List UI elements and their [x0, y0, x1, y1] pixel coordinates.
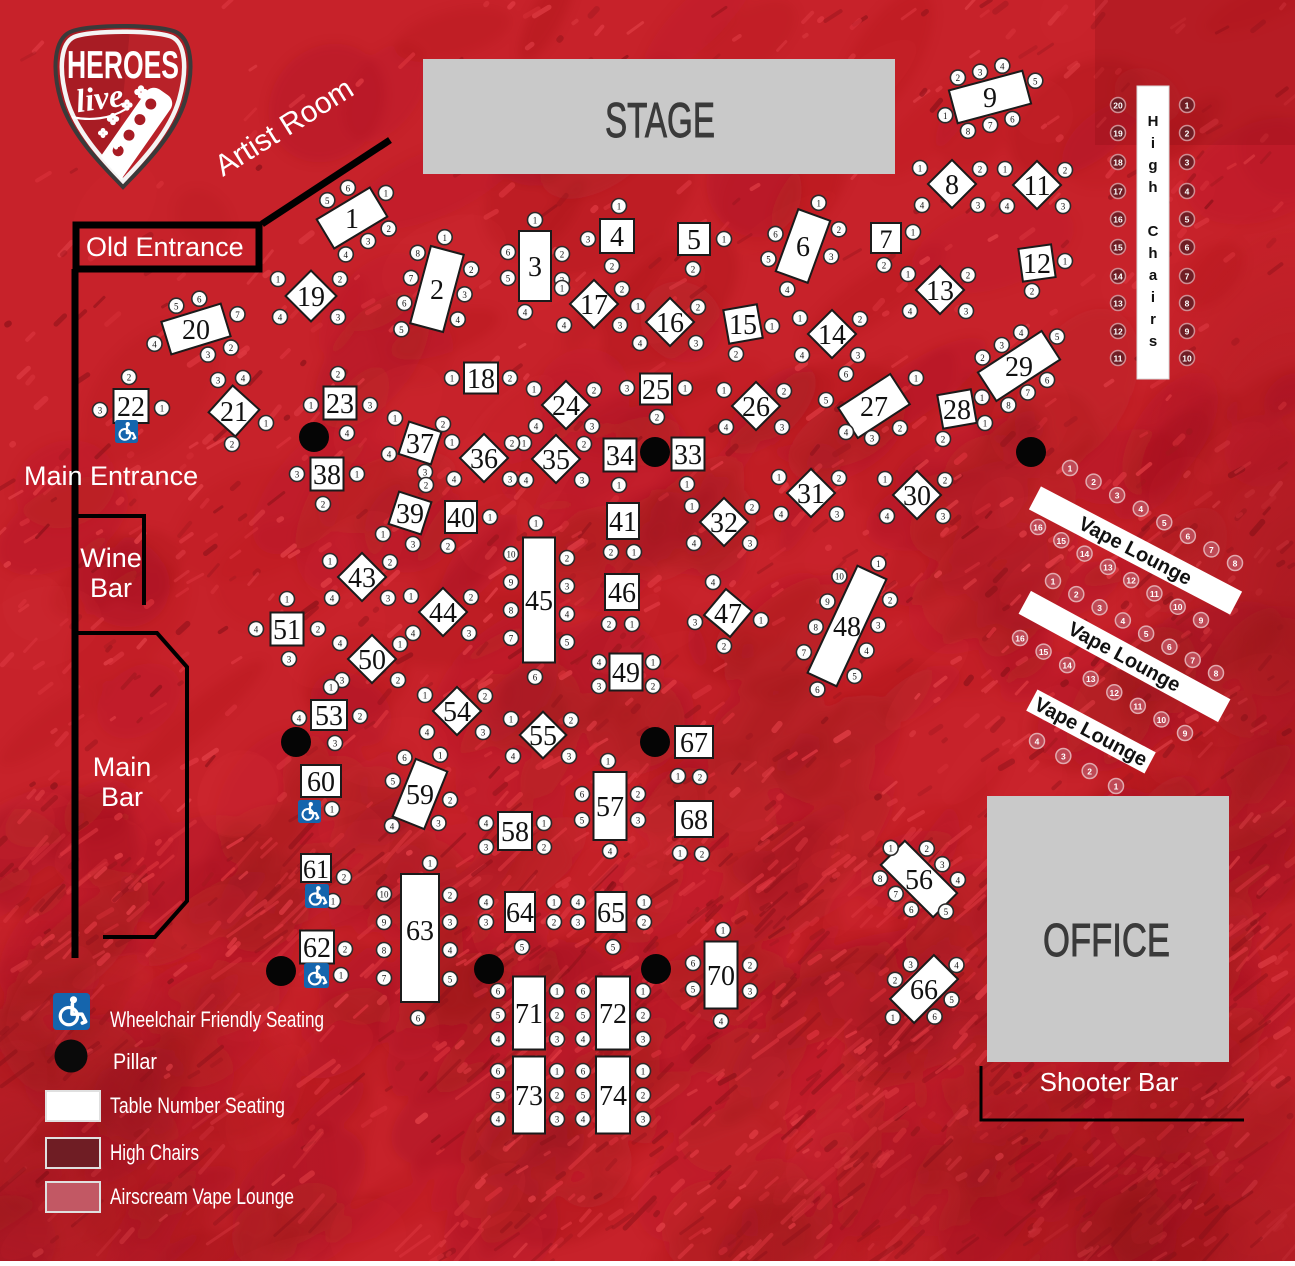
svg-text:Main Entrance: Main Entrance — [24, 461, 198, 491]
svg-text:33: 33 — [674, 440, 702, 471]
svg-text:4: 4 — [844, 428, 849, 438]
svg-text:2: 2 — [882, 261, 887, 271]
svg-text:70: 70 — [707, 961, 735, 992]
svg-text:1: 1 — [617, 481, 622, 491]
svg-text:4: 4 — [610, 222, 624, 253]
svg-text:10: 10 — [507, 550, 517, 560]
svg-text:4: 4 — [719, 1017, 724, 1027]
svg-text:35: 35 — [542, 445, 570, 476]
svg-text:4: 4 — [456, 315, 461, 325]
svg-text:2: 2 — [560, 250, 565, 260]
svg-text:1: 1 — [285, 595, 290, 605]
svg-text:48: 48 — [833, 612, 861, 643]
svg-text:2: 2 — [837, 225, 842, 235]
svg-text:6: 6 — [1010, 115, 1015, 125]
svg-text:7: 7 — [382, 974, 387, 984]
svg-text:1: 1 — [906, 270, 911, 280]
svg-text:3: 3 — [448, 918, 453, 928]
svg-text:4: 4 — [597, 658, 602, 668]
svg-text:4: 4 — [387, 450, 392, 460]
svg-text:17: 17 — [580, 290, 608, 321]
svg-text:4: 4 — [345, 429, 350, 439]
svg-text:27: 27 — [860, 392, 888, 423]
svg-text:1: 1 — [339, 971, 344, 981]
svg-text:9: 9 — [1183, 729, 1188, 739]
svg-text:11: 11 — [1133, 701, 1142, 711]
svg-text:65: 65 — [597, 898, 625, 929]
svg-text:7: 7 — [1185, 272, 1190, 282]
svg-text:3: 3 — [1000, 341, 1005, 351]
svg-text:6: 6 — [1185, 531, 1190, 541]
svg-text:4: 4 — [425, 728, 430, 738]
svg-text:3: 3 — [1061, 752, 1066, 762]
svg-text:1: 1 — [721, 926, 726, 936]
svg-text:25: 25 — [642, 375, 670, 406]
svg-text:2: 2 — [750, 503, 755, 513]
svg-text:1: 1 — [542, 819, 547, 829]
svg-text:4: 4 — [1120, 616, 1125, 626]
svg-text:4: 4 — [920, 201, 925, 211]
svg-text:12: 12 — [1023, 249, 1051, 280]
svg-text:2: 2 — [565, 554, 570, 564]
svg-text:47: 47 — [714, 599, 742, 630]
svg-text:3: 3 — [295, 470, 300, 480]
svg-text:15: 15 — [1113, 243, 1123, 253]
svg-text:18: 18 — [467, 364, 495, 395]
svg-text:2: 2 — [342, 873, 347, 883]
svg-text:3: 3 — [467, 629, 472, 639]
svg-text:15: 15 — [1039, 647, 1049, 657]
svg-text:4: 4 — [864, 646, 869, 656]
svg-text:34: 34 — [606, 441, 634, 472]
svg-text:3: 3 — [555, 1035, 560, 1045]
svg-text:7: 7 — [1190, 655, 1195, 665]
svg-text:2: 2 — [1063, 166, 1068, 176]
svg-text:H: H — [1148, 113, 1159, 130]
svg-text:STAGE: STAGE — [605, 94, 715, 148]
svg-text:2: 2 — [446, 542, 451, 552]
svg-text:3: 3 — [580, 476, 585, 486]
svg-text:30: 30 — [903, 481, 931, 512]
svg-text:4: 4 — [484, 819, 489, 829]
svg-text:1: 1 — [450, 438, 455, 448]
svg-text:3: 3 — [436, 819, 441, 829]
svg-text:8: 8 — [966, 126, 971, 136]
svg-text:1: 1 — [428, 859, 433, 869]
svg-text:5: 5 — [766, 255, 771, 265]
svg-text:2: 2 — [748, 961, 753, 971]
svg-text:31: 31 — [797, 479, 825, 510]
svg-text:4: 4 — [908, 307, 913, 317]
svg-text:2: 2 — [386, 224, 391, 234]
svg-text:2: 2 — [691, 265, 696, 275]
svg-text:5: 5 — [611, 943, 616, 953]
svg-text:66: 66 — [910, 975, 938, 1006]
svg-text:2: 2 — [483, 692, 488, 702]
svg-text:54: 54 — [443, 697, 471, 728]
svg-text:5: 5 — [506, 274, 511, 284]
svg-text:4: 4 — [330, 594, 335, 604]
svg-text:4: 4 — [581, 1035, 586, 1045]
svg-text:73: 73 — [515, 1081, 543, 1112]
svg-text:8: 8 — [509, 606, 514, 616]
svg-text:2: 2 — [888, 595, 893, 605]
svg-text:3: 3 — [597, 682, 602, 692]
svg-text:2: 2 — [430, 275, 444, 306]
svg-text:3: 3 — [636, 816, 641, 826]
svg-text:1: 1 — [355, 470, 360, 480]
svg-text:1: 1 — [641, 987, 646, 997]
svg-text:4: 4 — [779, 510, 784, 520]
svg-text:3: 3 — [590, 422, 595, 432]
svg-text:18: 18 — [1113, 158, 1123, 168]
svg-text:9: 9 — [825, 597, 830, 607]
svg-text:1: 1 — [330, 805, 335, 815]
svg-text:High Chairs: High Chairs — [110, 1140, 199, 1165]
svg-text:4: 4 — [496, 1115, 501, 1125]
svg-text:2: 2 — [396, 676, 401, 686]
svg-text:59: 59 — [406, 780, 434, 811]
svg-text:Main: Main — [93, 752, 152, 782]
svg-text:4: 4 — [1005, 202, 1010, 212]
svg-text:3: 3 — [206, 350, 211, 360]
svg-text:4: 4 — [484, 898, 489, 908]
svg-text:6: 6 — [506, 248, 511, 258]
svg-text:1: 1 — [606, 757, 611, 767]
svg-text:2: 2 — [698, 773, 703, 783]
svg-text:2: 2 — [424, 481, 429, 491]
svg-text:10: 10 — [1173, 602, 1183, 612]
svg-text:1: 1 — [438, 750, 443, 760]
svg-text:3: 3 — [484, 918, 489, 928]
svg-text:3: 3 — [368, 401, 373, 411]
svg-text:13: 13 — [1086, 674, 1096, 684]
svg-text:28: 28 — [943, 395, 971, 426]
svg-text:3: 3 — [567, 752, 572, 762]
svg-text:3: 3 — [340, 676, 345, 686]
svg-text:10: 10 — [1157, 715, 1167, 725]
svg-text:1: 1 — [632, 548, 637, 558]
svg-text:1: 1 — [914, 374, 919, 384]
svg-text:22: 22 — [117, 392, 145, 423]
svg-text:3: 3 — [481, 728, 486, 738]
svg-text:5: 5 — [399, 325, 404, 335]
svg-text:4: 4 — [534, 422, 539, 432]
svg-text:3: 3 — [870, 434, 875, 444]
svg-text:3: 3 — [693, 618, 698, 628]
svg-text:2: 2 — [510, 439, 515, 449]
svg-text:3: 3 — [576, 918, 581, 928]
svg-text:6: 6 — [773, 230, 778, 240]
svg-text:6: 6 — [1045, 376, 1050, 386]
svg-text:4: 4 — [1035, 737, 1040, 747]
svg-text:1: 1 — [911, 228, 916, 238]
svg-text:1: 1 — [555, 987, 560, 997]
svg-text:19: 19 — [1113, 129, 1123, 139]
svg-text:5: 5 — [325, 196, 330, 206]
svg-text:64: 64 — [506, 898, 534, 929]
svg-text:3: 3 — [411, 540, 416, 550]
svg-text:2: 2 — [636, 790, 641, 800]
svg-text:1: 1 — [630, 620, 635, 630]
svg-text:8: 8 — [1006, 401, 1011, 411]
svg-text:10: 10 — [1182, 354, 1192, 364]
svg-text:2: 2 — [956, 73, 961, 83]
svg-text:4: 4 — [800, 351, 805, 361]
svg-text:7: 7 — [235, 310, 240, 320]
svg-text:4: 4 — [724, 423, 729, 433]
svg-text:g: g — [1148, 157, 1157, 174]
svg-text:5: 5 — [581, 1091, 586, 1101]
svg-text:4: 4 — [511, 752, 516, 762]
svg-text:11: 11 — [1024, 171, 1051, 202]
svg-text:r: r — [1150, 311, 1156, 328]
svg-text:4: 4 — [152, 339, 157, 349]
svg-text:6: 6 — [581, 987, 586, 997]
svg-text:1: 1 — [450, 374, 455, 384]
svg-text:38: 38 — [313, 460, 341, 491]
svg-text:4: 4 — [523, 308, 528, 318]
svg-text:2: 2 — [610, 262, 615, 272]
svg-text:5: 5 — [852, 672, 857, 682]
svg-text:5: 5 — [1162, 518, 1167, 528]
svg-text:4: 4 — [411, 629, 416, 639]
svg-text:2: 2 — [321, 500, 326, 510]
svg-text:5: 5 — [580, 816, 585, 826]
svg-text:9: 9 — [382, 918, 387, 928]
svg-text:12: 12 — [1110, 688, 1120, 698]
svg-text:46: 46 — [608, 578, 636, 609]
svg-text:2: 2 — [941, 435, 946, 445]
svg-text:2: 2 — [336, 370, 341, 380]
svg-text:i: i — [1151, 289, 1155, 306]
svg-text:1: 1 — [329, 683, 334, 693]
svg-text:2: 2 — [448, 795, 453, 805]
svg-text:4: 4 — [278, 313, 283, 323]
svg-text:13: 13 — [1113, 299, 1123, 309]
svg-text:2: 2 — [734, 350, 739, 360]
svg-text:C: C — [1148, 223, 1159, 240]
svg-text:1: 1 — [1114, 782, 1119, 792]
svg-text:4: 4 — [638, 339, 643, 349]
svg-text:4: 4 — [297, 714, 302, 724]
svg-text:8: 8 — [415, 248, 420, 258]
svg-text:2: 2 — [700, 850, 705, 860]
svg-text:3: 3 — [508, 475, 513, 485]
svg-text:6: 6 — [1167, 642, 1172, 652]
svg-text:1: 1 — [722, 235, 727, 245]
svg-text:3: 3 — [1061, 202, 1066, 212]
svg-text:7: 7 — [1209, 545, 1214, 555]
svg-text:3: 3 — [908, 960, 913, 970]
svg-text:2: 2 — [1091, 477, 1096, 487]
svg-text:5: 5 — [1144, 629, 1149, 639]
svg-text:4: 4 — [1185, 187, 1190, 197]
svg-text:Pillar: Pillar — [113, 1049, 157, 1074]
svg-text:3: 3 — [1097, 603, 1102, 613]
svg-text:1: 1 — [398, 640, 403, 650]
svg-text:3: 3 — [555, 1115, 560, 1125]
svg-text:29: 29 — [1005, 352, 1033, 383]
svg-text:3: 3 — [748, 539, 753, 549]
svg-text:49: 49 — [612, 658, 640, 689]
svg-text:60: 60 — [307, 767, 335, 798]
svg-text:1: 1 — [552, 898, 557, 908]
svg-text:2: 2 — [555, 1011, 560, 1021]
svg-text:21: 21 — [220, 397, 248, 428]
svg-text:2: 2 — [898, 424, 903, 434]
svg-text:3: 3 — [835, 510, 840, 520]
svg-text:4: 4 — [241, 374, 246, 384]
svg-text:1: 1 — [1068, 464, 1073, 474]
svg-text:44: 44 — [429, 598, 457, 629]
svg-text:4: 4 — [254, 625, 259, 635]
svg-text:4: 4 — [452, 475, 457, 485]
svg-text:2: 2 — [338, 275, 343, 285]
svg-text:4: 4 — [885, 512, 890, 522]
svg-text:36: 36 — [470, 444, 498, 475]
svg-text:1: 1 — [555, 1067, 560, 1077]
svg-text:HEROES: HEROES — [67, 44, 179, 87]
svg-text:1: 1 — [1185, 101, 1190, 111]
svg-text:2: 2 — [607, 620, 612, 630]
svg-text:3: 3 — [1185, 158, 1190, 168]
svg-text:Old Entrance: Old Entrance — [86, 232, 244, 262]
svg-text:1: 1 — [918, 164, 923, 174]
svg-text:3: 3 — [976, 201, 981, 211]
svg-text:2: 2 — [230, 440, 235, 450]
svg-text:1: 1 — [1003, 165, 1008, 175]
svg-text:7: 7 — [802, 648, 807, 658]
svg-text:7: 7 — [409, 274, 414, 284]
svg-text:10: 10 — [835, 572, 845, 582]
svg-text:3: 3 — [625, 384, 630, 394]
svg-text:68: 68 — [680, 805, 708, 836]
svg-text:3: 3 — [333, 739, 338, 749]
svg-text:4: 4 — [344, 250, 349, 260]
svg-text:43: 43 — [348, 563, 376, 594]
svg-text:7: 7 — [893, 889, 898, 899]
svg-text:3: 3 — [641, 1035, 646, 1045]
svg-text:3: 3 — [964, 307, 969, 317]
svg-text:5: 5 — [1185, 215, 1190, 225]
svg-text:14: 14 — [818, 320, 846, 351]
svg-text:1: 1 — [683, 384, 688, 394]
svg-text:37: 37 — [406, 429, 434, 460]
svg-text:15: 15 — [1057, 536, 1067, 546]
svg-text:3: 3 — [876, 621, 881, 631]
svg-text:4: 4 — [496, 1035, 501, 1045]
svg-text:1: 1 — [328, 557, 333, 567]
svg-text:16: 16 — [656, 308, 684, 339]
svg-text:Airscream Vape Lounge: Airscream Vape Lounge — [110, 1184, 294, 1209]
svg-text:2: 2 — [978, 165, 983, 175]
svg-text:6: 6 — [402, 299, 407, 309]
svg-text:6: 6 — [909, 905, 914, 915]
svg-text:3: 3 — [216, 376, 221, 386]
svg-text:1: 1 — [676, 772, 681, 782]
svg-text:2: 2 — [592, 386, 597, 396]
svg-text:20: 20 — [1113, 101, 1123, 111]
svg-text:8: 8 — [1214, 669, 1219, 679]
svg-text:5: 5 — [687, 225, 701, 256]
svg-text:5: 5 — [496, 1091, 501, 1101]
svg-text:1: 1 — [442, 233, 447, 243]
svg-text:1: 1 — [509, 715, 514, 725]
svg-text:16: 16 — [1113, 215, 1123, 225]
svg-text:2: 2 — [966, 271, 971, 281]
svg-text:5: 5 — [174, 301, 179, 311]
svg-text:1: 1 — [384, 189, 389, 199]
svg-text:1: 1 — [816, 198, 821, 208]
svg-text:2: 2 — [358, 712, 363, 722]
svg-text:7: 7 — [509, 634, 514, 644]
svg-text:4: 4 — [576, 898, 581, 908]
svg-text:2: 2 — [441, 420, 446, 430]
svg-text:2: 2 — [641, 1091, 646, 1101]
svg-text:8: 8 — [813, 623, 818, 633]
svg-text:41: 41 — [609, 507, 637, 538]
svg-text:1: 1 — [532, 385, 537, 395]
svg-text:74: 74 — [599, 1081, 627, 1112]
svg-text:1: 1 — [678, 849, 683, 859]
svg-text:6: 6 — [815, 685, 820, 695]
svg-text:1: 1 — [980, 393, 985, 403]
svg-text:55: 55 — [529, 721, 557, 752]
svg-text:5: 5 — [691, 985, 696, 995]
svg-text:Shooter Bar: Shooter Bar — [1040, 1067, 1179, 1097]
svg-text:6: 6 — [691, 959, 696, 969]
svg-text:2: 2 — [582, 440, 587, 450]
svg-text:6: 6 — [346, 183, 351, 193]
svg-text:23: 23 — [326, 389, 354, 420]
svg-text:8: 8 — [878, 874, 883, 884]
svg-text:4: 4 — [956, 875, 961, 885]
svg-text:6: 6 — [197, 294, 202, 304]
svg-text:2: 2 — [1087, 767, 1092, 777]
svg-text:a: a — [1149, 267, 1158, 284]
svg-text:2: 2 — [127, 373, 132, 383]
svg-text:20: 20 — [182, 315, 210, 346]
svg-text:3: 3 — [941, 512, 946, 522]
svg-text:4: 4 — [581, 1115, 586, 1125]
svg-text:3: 3 — [780, 423, 785, 433]
svg-text:2: 2 — [508, 374, 513, 384]
svg-text:6: 6 — [416, 1014, 421, 1024]
svg-text:9: 9 — [1185, 327, 1190, 337]
svg-text:16: 16 — [1015, 634, 1025, 644]
svg-text:8: 8 — [945, 170, 959, 201]
svg-text:1: 1 — [888, 844, 893, 854]
svg-text:4: 4 — [524, 476, 529, 486]
svg-text:4: 4 — [711, 578, 716, 588]
svg-text:1: 1 — [331, 897, 336, 907]
svg-text:7: 7 — [1026, 388, 1031, 398]
svg-text:1: 1 — [943, 111, 948, 121]
svg-text:2: 2 — [609, 548, 614, 558]
svg-text:5: 5 — [448, 975, 453, 985]
svg-text:5: 5 — [520, 943, 525, 953]
svg-text:4: 4 — [692, 539, 697, 549]
svg-text:3: 3 — [829, 252, 834, 262]
svg-text:8: 8 — [382, 946, 387, 956]
svg-text:2: 2 — [858, 315, 863, 325]
svg-text:3: 3 — [748, 987, 753, 997]
svg-text:2: 2 — [782, 387, 787, 397]
svg-text:6: 6 — [580, 790, 585, 800]
svg-text:6: 6 — [533, 673, 538, 683]
svg-text:2: 2 — [552, 918, 557, 928]
